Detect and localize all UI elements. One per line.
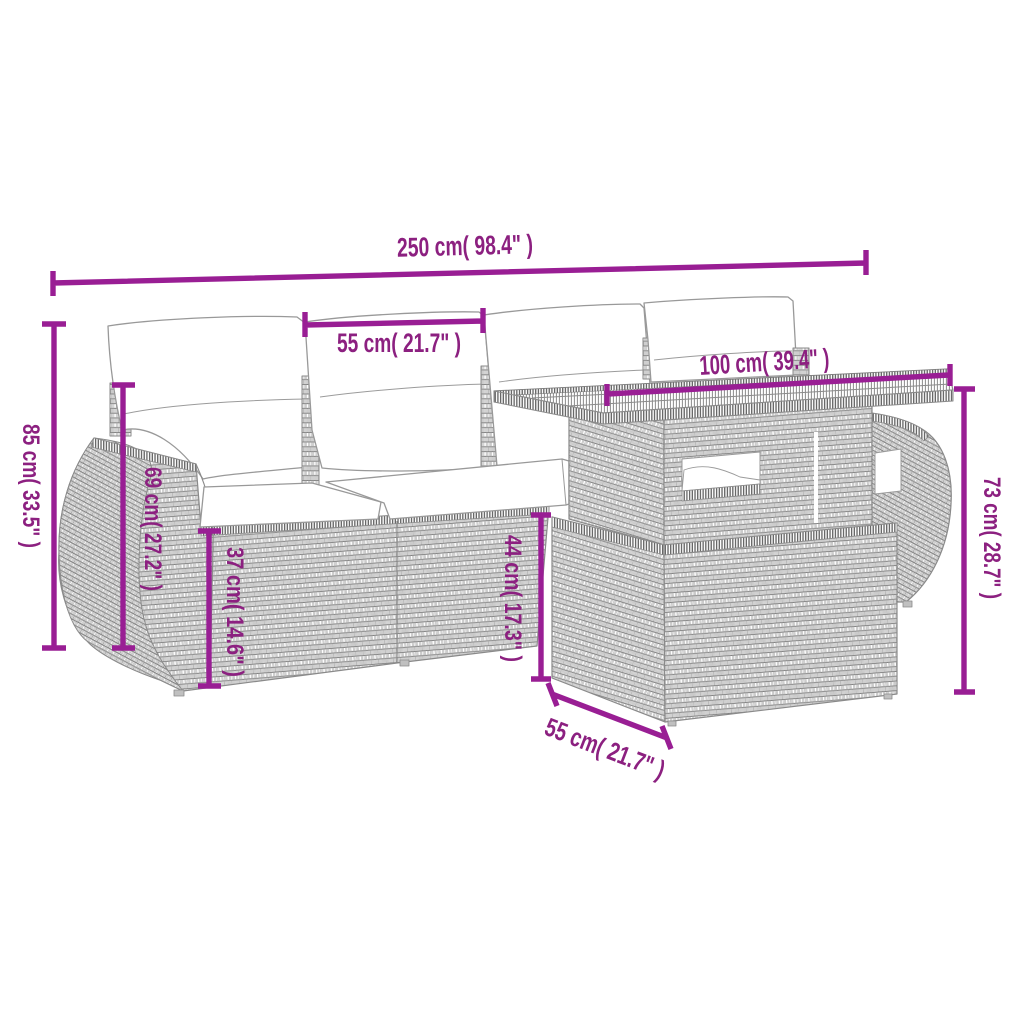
svg-text:85 cm( 33.5" ): 85 cm( 33.5" ) [17,424,44,548]
svg-text:73 cm( 28.7" ): 73 cm( 28.7" ) [978,477,1005,599]
svg-text:250 cm( 98.4" ): 250 cm( 98.4" ) [397,229,534,263]
svg-text:55 cm( 21.7" ): 55 cm( 21.7" ) [541,712,669,785]
svg-text:69 cm( 27.2" ): 69 cm( 27.2" ) [139,467,166,591]
svg-text:37 cm( 14.6" ): 37 cm( 14.6" ) [221,547,248,677]
svg-text:44 cm( 17.3" ): 44 cm( 17.3" ) [499,535,526,662]
svg-text:55 cm( 21.7" ): 55 cm( 21.7" ) [337,328,461,358]
